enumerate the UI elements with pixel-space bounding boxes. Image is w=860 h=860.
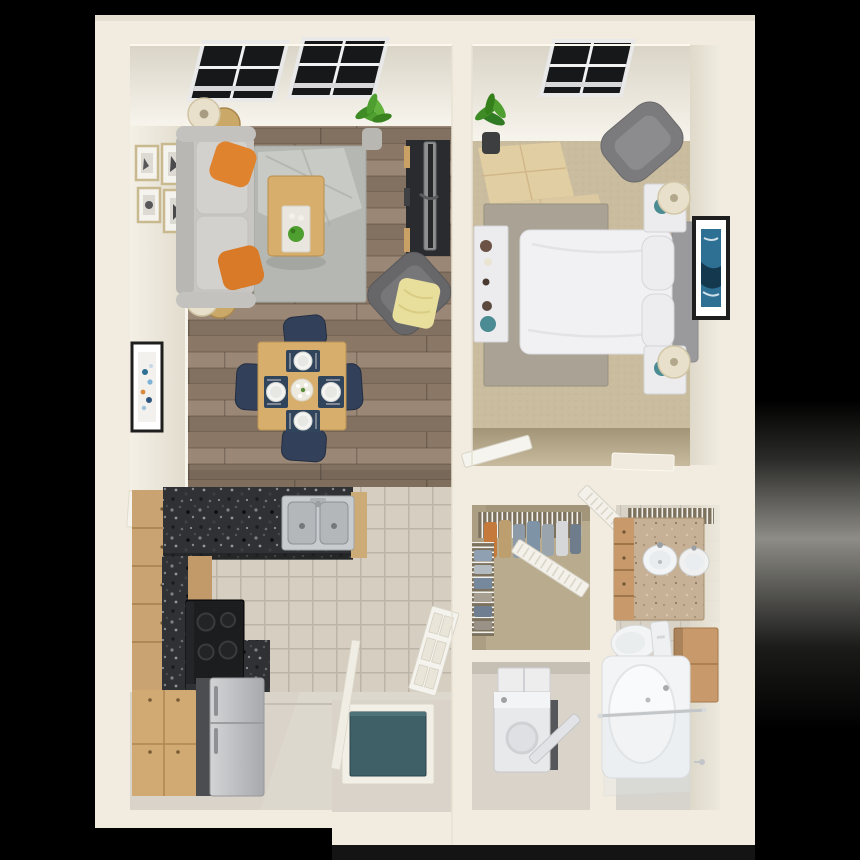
pantry-knob-4 <box>176 750 180 754</box>
plate-top-inner <box>298 356 309 367</box>
living-window-1 <box>187 40 290 102</box>
living-top-baseboard <box>130 123 452 126</box>
floor-plan-render <box>0 0 860 860</box>
window-sill <box>545 82 622 87</box>
fridge-front <box>210 678 264 796</box>
floor-lamp-top-finial <box>200 110 209 119</box>
hanging-clothes-navy <box>570 524 581 554</box>
mirror-sink-bowl <box>685 554 704 571</box>
art-dot-2 <box>147 379 152 384</box>
rod-bracket-right <box>702 708 707 713</box>
laundry-cabinet-seam <box>523 668 525 692</box>
bedroom-door-threshold <box>612 453 675 471</box>
folded-clothes-3 <box>474 578 492 589</box>
folded-clothes-5 <box>474 606 492 617</box>
plate-bottom-inner <box>298 416 309 427</box>
washer-dial <box>501 697 507 703</box>
vanity-knob-1 <box>622 530 625 533</box>
sink-faucet-base <box>315 501 321 507</box>
plate-right-inner <box>325 386 337 398</box>
vanity-faucet <box>657 542 663 548</box>
dresser-vase-3 <box>482 301 492 311</box>
art-dot-1 <box>142 369 148 375</box>
console-shelf-gap <box>404 188 410 206</box>
burner-1 <box>198 614 215 631</box>
folded-clothes-6 <box>474 621 492 630</box>
hanging-clothes-white <box>556 521 568 556</box>
pantry-knob-3 <box>148 750 152 754</box>
abstract-frame-mat <box>138 352 156 422</box>
tv-console <box>404 140 450 256</box>
dresser-teal-bowl <box>480 316 496 332</box>
living-plant-pot <box>362 128 382 150</box>
bathtub <box>598 656 707 796</box>
window-sill <box>293 83 374 88</box>
burner-4 <box>220 642 237 659</box>
flower-1 <box>296 384 300 388</box>
lamp-bottom-finial <box>670 358 678 366</box>
sink-drain-left <box>299 523 305 529</box>
dresser <box>474 226 508 342</box>
bottom-left-background-trim <box>95 828 332 860</box>
vanity-knob-3 <box>622 582 625 585</box>
hanging-clothes-tan <box>499 520 511 558</box>
kitchen-sink <box>282 496 354 550</box>
living-room <box>130 37 458 490</box>
background-gray-band <box>750 400 860 730</box>
flower-3 <box>306 391 310 395</box>
console-wood-accent-2 <box>404 228 410 252</box>
tub-faucet <box>663 685 669 691</box>
vanity-drain <box>658 560 662 564</box>
pantry-knob-1 <box>148 698 152 702</box>
toilet-tank <box>650 621 672 661</box>
living-window-2 <box>287 37 390 99</box>
front-door-edge-highlight <box>350 712 426 716</box>
refrigerator <box>196 678 264 796</box>
burner-3 <box>199 645 214 660</box>
lamp-top-finial <box>670 194 678 202</box>
coffee-table-plant <box>288 226 304 242</box>
folded-clothes-2 <box>474 565 492 574</box>
tray-cup-1 <box>289 213 295 219</box>
tray-cup-2 <box>298 215 304 221</box>
front-door-teal <box>350 712 426 776</box>
art-dot-4 <box>146 397 152 403</box>
wall-top-edge <box>95 15 755 21</box>
art-dot-6 <box>149 364 153 368</box>
pantry-cabinet <box>132 690 196 796</box>
vanity <box>614 518 709 620</box>
vanity-knob-2 <box>622 556 625 559</box>
folded-clothes-1 <box>474 550 492 561</box>
dresser-vase-2 <box>483 279 490 286</box>
fridge-handle-top <box>214 686 218 716</box>
sofa-armrest-top <box>176 126 256 142</box>
bedroom-window <box>539 39 636 97</box>
abstract-frame-living <box>132 343 162 431</box>
gallery-sketch-3 <box>145 201 153 209</box>
hanging-clothes-gray <box>542 524 554 556</box>
dresser-candle <box>484 258 492 266</box>
sink-drain-right <box>331 523 337 529</box>
granite-speckle-left <box>162 556 188 692</box>
laundry-closet <box>472 662 590 810</box>
coffee-table <box>266 176 326 270</box>
sofa-back <box>176 136 194 294</box>
window-sill <box>193 86 274 91</box>
flower-2 <box>304 383 308 387</box>
dresser-vase-1 <box>480 240 492 252</box>
washer-door-ring <box>507 723 537 753</box>
stove-control-strip <box>186 602 194 690</box>
burner-2 <box>221 613 235 627</box>
flower-greens <box>301 388 305 392</box>
bedroom <box>461 39 728 471</box>
sofa-armrest-bottom <box>176 292 256 308</box>
sofa <box>176 126 266 308</box>
coffee-plant-leaf <box>291 229 296 234</box>
tub-drain <box>646 698 651 703</box>
pantry-knob-2 <box>176 698 180 702</box>
console-wood-accent-1 <box>404 146 410 168</box>
bedroom-wall-art <box>694 218 728 318</box>
flower-4 <box>298 394 302 398</box>
art-dot-5 <box>142 406 146 410</box>
fridge-door-seam <box>210 722 264 724</box>
floor-plan-svg <box>0 0 860 860</box>
fridge-handle-bottom <box>214 728 218 754</box>
mirror-faucet <box>691 545 696 550</box>
living-floor-shadow <box>188 470 452 487</box>
rod-bracket-left <box>598 714 603 719</box>
bed <box>520 222 698 362</box>
bed-pillow-1 <box>642 236 674 290</box>
tv-screen-edge <box>428 144 433 248</box>
bedroom-plant-pot <box>482 132 500 154</box>
walk-in-closet <box>472 505 590 650</box>
plate-left-inner <box>270 386 282 398</box>
cabinet-face-under-counter <box>188 556 212 602</box>
shower-glass-panel <box>604 709 690 796</box>
art-dot-3 <box>141 390 146 395</box>
bed-pillow-2 <box>642 294 674 348</box>
folded-clothes-4 <box>474 593 492 602</box>
